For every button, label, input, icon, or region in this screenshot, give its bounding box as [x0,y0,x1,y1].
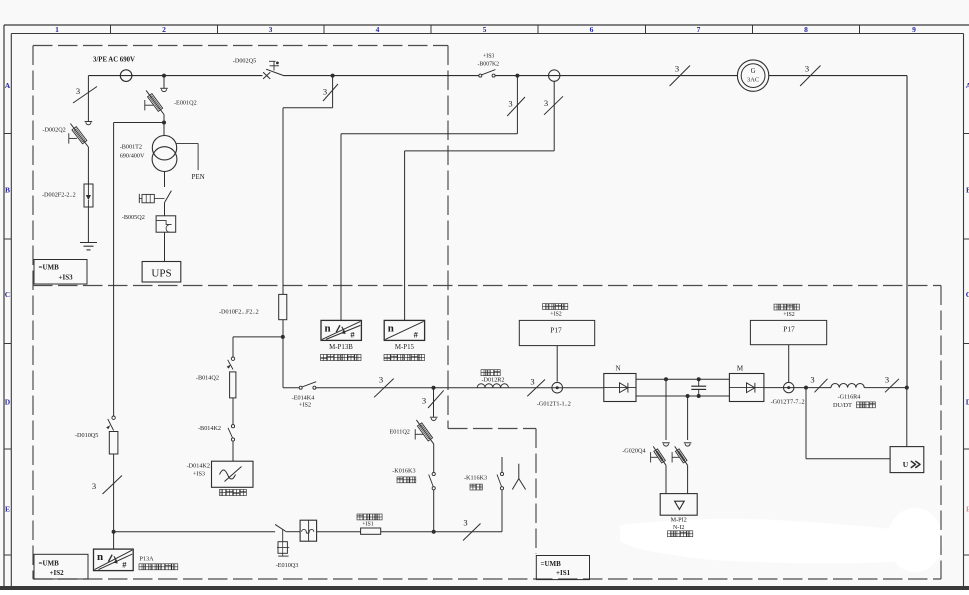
svg-text:3: 3 [379,375,383,385]
svg-text:9: 9 [912,25,916,34]
svg-text:3: 3 [508,99,512,109]
svg-text:P17: P17 [550,326,562,335]
svg-text:G: G [751,68,756,75]
svg-text:+IS3: +IS3 [59,274,74,282]
svg-text:-G012T1-1..2: -G012T1-1..2 [537,401,571,408]
svg-text:3: 3 [76,86,80,96]
svg-text:E: E [5,505,10,514]
svg-text:3: 3 [805,64,809,74]
svg-text:DU/DT: DU/DT [833,402,852,409]
svg-text:3: 3 [422,396,426,406]
svg-text:3: 3 [323,87,327,97]
svg-text:3/PE AC 690V: 3/PE AC 690V [93,57,135,64]
svg-text:3: 3 [463,518,467,528]
svg-text:7: 7 [697,25,701,34]
svg-text:-D002F2-2..2: -D002F2-2..2 [42,192,76,199]
svg-text:#: # [414,329,419,339]
svg-text:3: 3 [675,64,679,74]
svg-text:3: 3 [544,98,548,108]
svg-text:6: 6 [590,25,594,34]
svg-text:C: C [5,290,10,299]
svg-text:8: 8 [804,25,808,34]
svg-text:M-P15: M-P15 [395,344,415,351]
svg-text:-G116R4: -G116R4 [838,394,861,401]
svg-text:-G012T7-7..2: -G012T7-7..2 [771,399,805,406]
svg-text:+IS2: +IS2 [299,402,311,409]
svg-text:-D012R2: -D012R2 [481,377,504,384]
svg-text:-E014K4: -E014K4 [292,395,315,402]
svg-text:=UMB: =UMB [39,264,60,272]
svg-text:5: 5 [483,25,487,34]
svg-text:-D014K2: -D014K2 [187,463,210,470]
svg-text:-E010Q3: -E010Q3 [276,562,299,569]
svg-text:-D002Q2: -D002Q2 [42,127,65,134]
svg-text:A: A [5,81,11,90]
svg-text:-B014K2: -B014K2 [198,425,221,432]
svg-text:4: 4 [376,25,380,34]
svg-text:+IS1: +IS1 [556,569,571,577]
svg-text:P13A: P13A [140,556,155,563]
svg-text:UPS: UPS [151,268,171,280]
svg-text:3: 3 [885,375,889,385]
svg-text:+IS2: +IS2 [783,312,795,318]
svg-text:+IS2: +IS2 [50,569,65,577]
svg-text:n: n [97,551,103,563]
svg-text:3: 3 [530,377,534,387]
svg-text:PEN: PEN [192,173,205,181]
svg-text:2: 2 [162,25,166,34]
svg-text:-B007K2: -B007K2 [478,62,500,68]
svg-text:=UMB: =UMB [541,560,562,568]
svg-text:B: B [5,186,10,195]
svg-text:+IS3: +IS3 [193,471,205,478]
svg-text:=UMB: =UMB [39,560,60,568]
svg-text:-K116K3: -K116K3 [464,475,487,482]
svg-text:3AC: 3AC [747,77,759,84]
svg-text:3: 3 [92,481,96,491]
svg-text:n: n [325,322,331,334]
svg-text:E011Q2: E011Q2 [390,429,410,436]
svg-text:M: M [737,365,744,373]
svg-text:-B001T2: -B001T2 [120,144,142,151]
svg-text:-B005Q2: -B005Q2 [122,214,145,221]
svg-text:D: D [5,398,11,407]
svg-text:1: 1 [55,25,59,34]
svg-text:+IS2: +IS2 [550,312,562,318]
svg-text:-K016K3: -K016K3 [392,468,415,475]
svg-text:+IS1: +IS1 [362,522,374,528]
svg-text:#: # [122,560,127,570]
svg-text:#: # [350,329,355,339]
svg-text:N-I2: N-I2 [673,524,685,531]
svg-text:N: N [615,365,620,373]
svg-text:n: n [388,322,394,334]
svg-text:+IS3: +IS3 [483,54,494,60]
svg-text:-D002Q5: -D002Q5 [233,58,256,65]
svg-text:-E001Q2: -E001Q2 [174,100,197,107]
svg-text:P17: P17 [783,325,795,334]
svg-text:-D010Q5: -D010Q5 [75,432,98,439]
svg-text:690/400V: 690/400V [120,153,145,160]
svg-text:3: 3 [810,375,814,385]
svg-text:-D010F2...F2..2: -D010F2...F2..2 [219,309,259,316]
svg-text:3: 3 [269,25,273,34]
svg-text:U: U [903,460,909,469]
svg-text:-B014Q2: -B014Q2 [196,375,219,382]
svg-text:M-PI2: M-PI2 [671,517,687,524]
svg-text:M-P13B: M-P13B [329,344,353,351]
svg-text:-G020Q4: -G020Q4 [622,448,645,455]
